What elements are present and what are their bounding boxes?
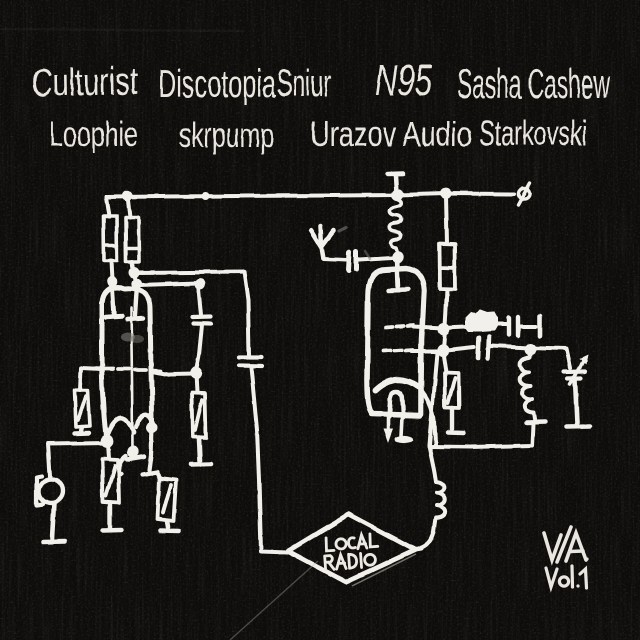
svg-text:skrpump: skrpump [179, 116, 274, 155]
svg-text:Loophie: Loophie [49, 115, 138, 154]
svg-text:Discotopia: Discotopia [158, 63, 276, 106]
svg-text:N95: N95 [375, 56, 432, 105]
svg-text:Urazov Audio: Urazov Audio [310, 115, 472, 154]
svg-text:Sasha Cashew: Sasha Cashew [457, 60, 610, 107]
svg-text:Sniur: Sniur [277, 63, 331, 105]
svg-text:Culturist: Culturist [31, 60, 138, 105]
svg-text:Starkovski: Starkovski [479, 114, 587, 153]
